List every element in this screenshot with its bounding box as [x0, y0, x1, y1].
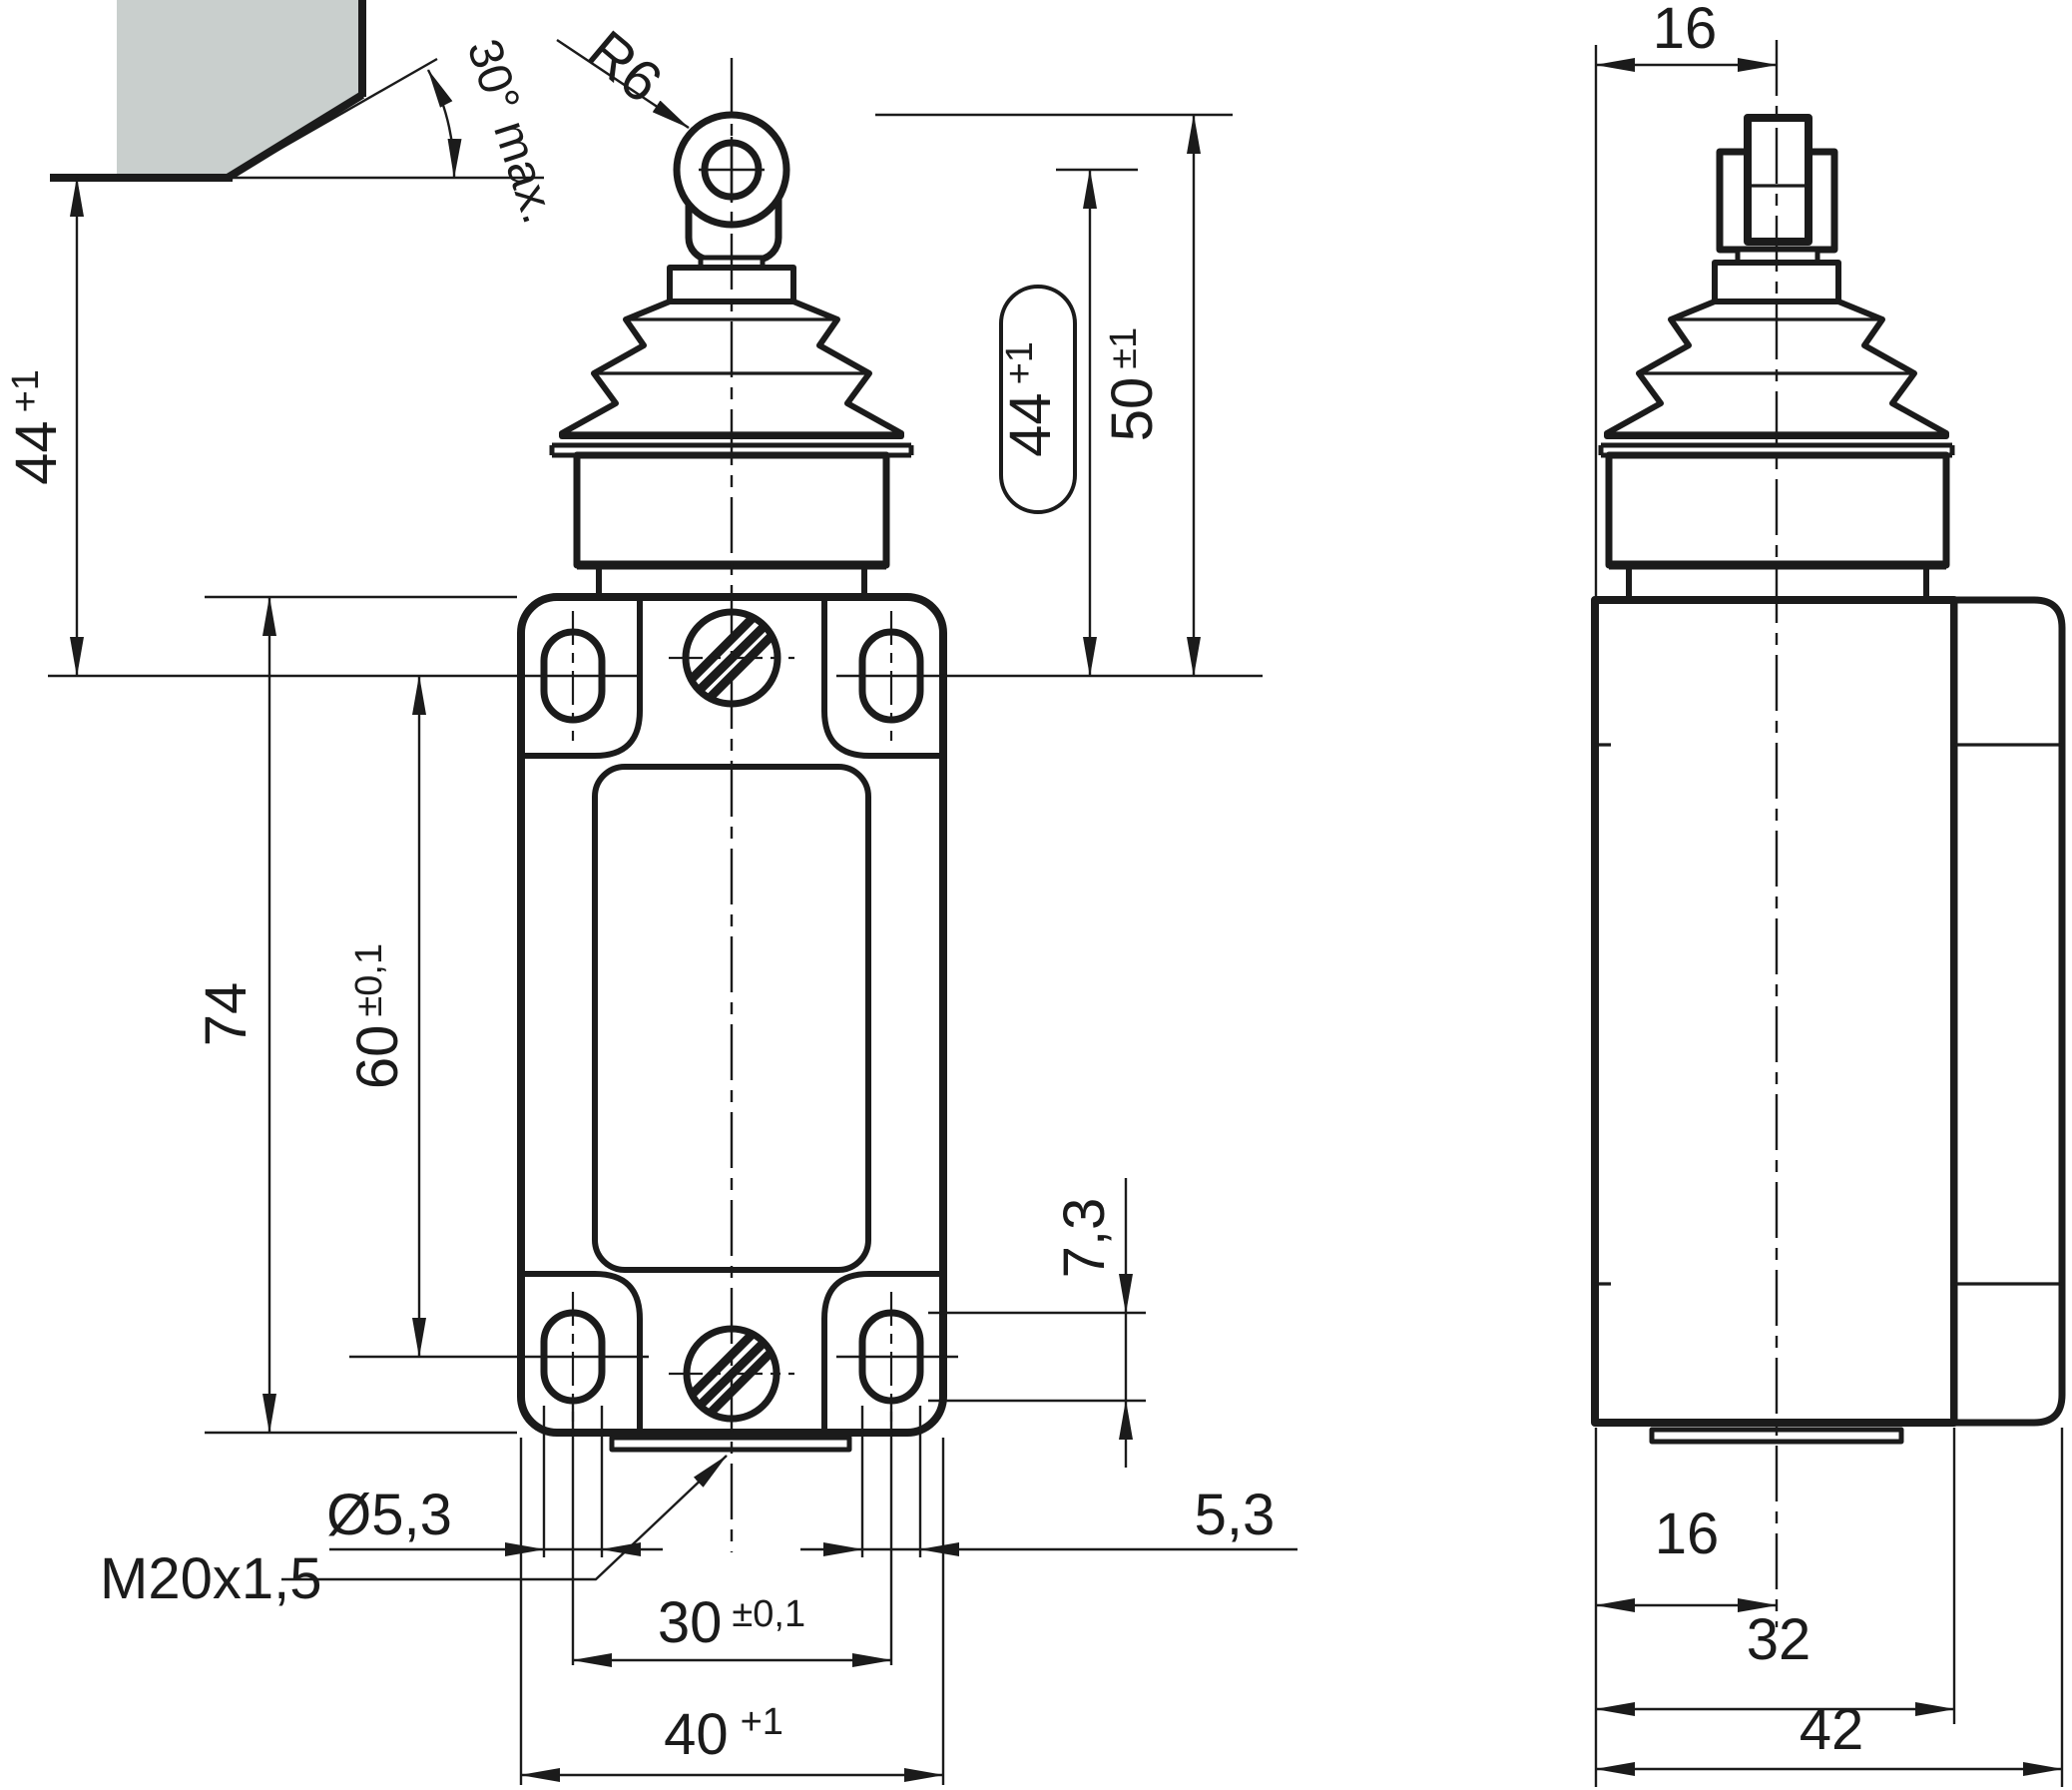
dim-operating-height: 50±1	[1100, 327, 1165, 442]
dim-side-body-depth: 32	[1747, 1607, 1812, 1672]
technical-drawing-canvas: 30° max.	[0, 0, 2072, 1790]
dim-side-total-depth: 42	[1800, 1697, 1864, 1762]
side-roller-edge	[1748, 118, 1809, 242]
limit-switch-dimension-drawing: 30° max.	[0, 0, 2072, 1790]
angle-arc	[428, 70, 454, 178]
side-cover	[1954, 600, 2062, 1423]
dim-approach-angle: 30° max.	[457, 33, 566, 230]
dim-cable-entry-thread: M20x1,5	[100, 1546, 321, 1611]
front-view-housing	[521, 58, 943, 1552]
dim-slot-length: 7,3	[1052, 1198, 1117, 1279]
dim-free-height: 44+1	[4, 369, 69, 485]
side-body	[1595, 600, 1954, 1423]
actuating-cam: 30° max.	[50, 0, 566, 230]
cam-body	[117, 0, 362, 178]
dim-body-height: 74	[194, 982, 259, 1047]
dim-hole-spacing-horizontal: 30±0,1	[658, 1590, 805, 1655]
side-view	[1595, 40, 2062, 1627]
dim-stroke-capsule: 44+1	[998, 341, 1063, 457]
dim-hole-diameter: Ø5,3	[326, 1483, 452, 1547]
dim-hole-spacing-vertical: 60±0,1	[345, 943, 410, 1089]
dim-slot-width: 5,3	[1195, 1483, 1276, 1547]
dim-roller-radius: R6	[576, 18, 675, 115]
dim-side-top-width: 16	[1653, 0, 1718, 61]
dim-body-width: 40+1	[664, 1701, 783, 1767]
dim-side-bottom-offset: 16	[1655, 1501, 1720, 1566]
